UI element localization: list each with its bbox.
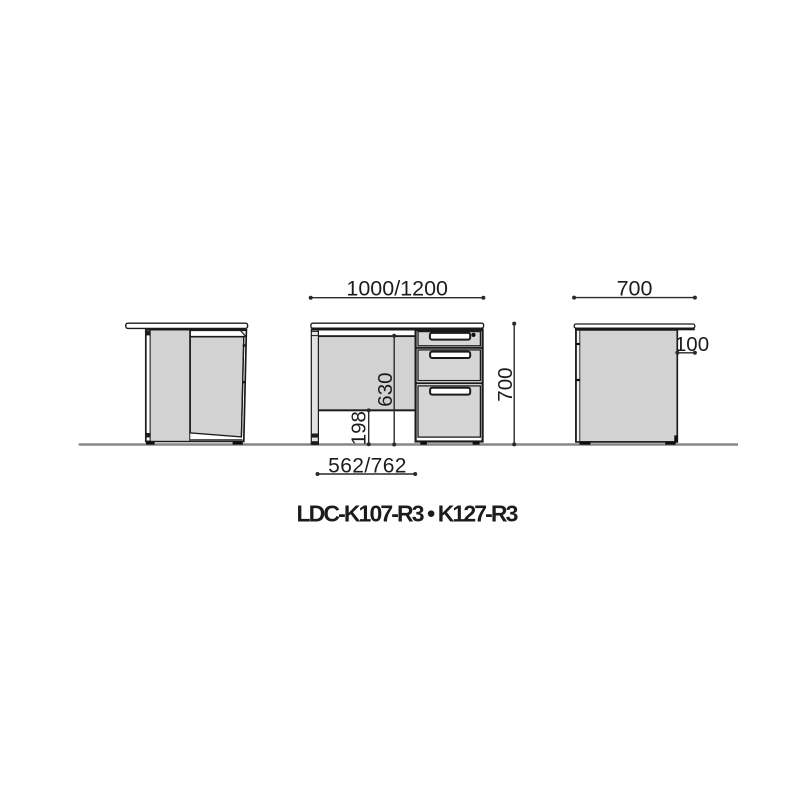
svg-text:1000/1200: 1000/1200 bbox=[346, 276, 448, 300]
svg-text:198: 198 bbox=[348, 411, 371, 445]
svg-text:700: 700 bbox=[617, 276, 653, 300]
svg-text:630: 630 bbox=[374, 372, 397, 406]
svg-text:LDC-K107-R3 • K127-R3: LDC-K107-R3 • K127-R3 bbox=[297, 501, 518, 527]
svg-text:100: 100 bbox=[675, 333, 709, 356]
svg-text:700: 700 bbox=[494, 367, 517, 401]
svg-text:562/762: 562/762 bbox=[328, 454, 407, 477]
